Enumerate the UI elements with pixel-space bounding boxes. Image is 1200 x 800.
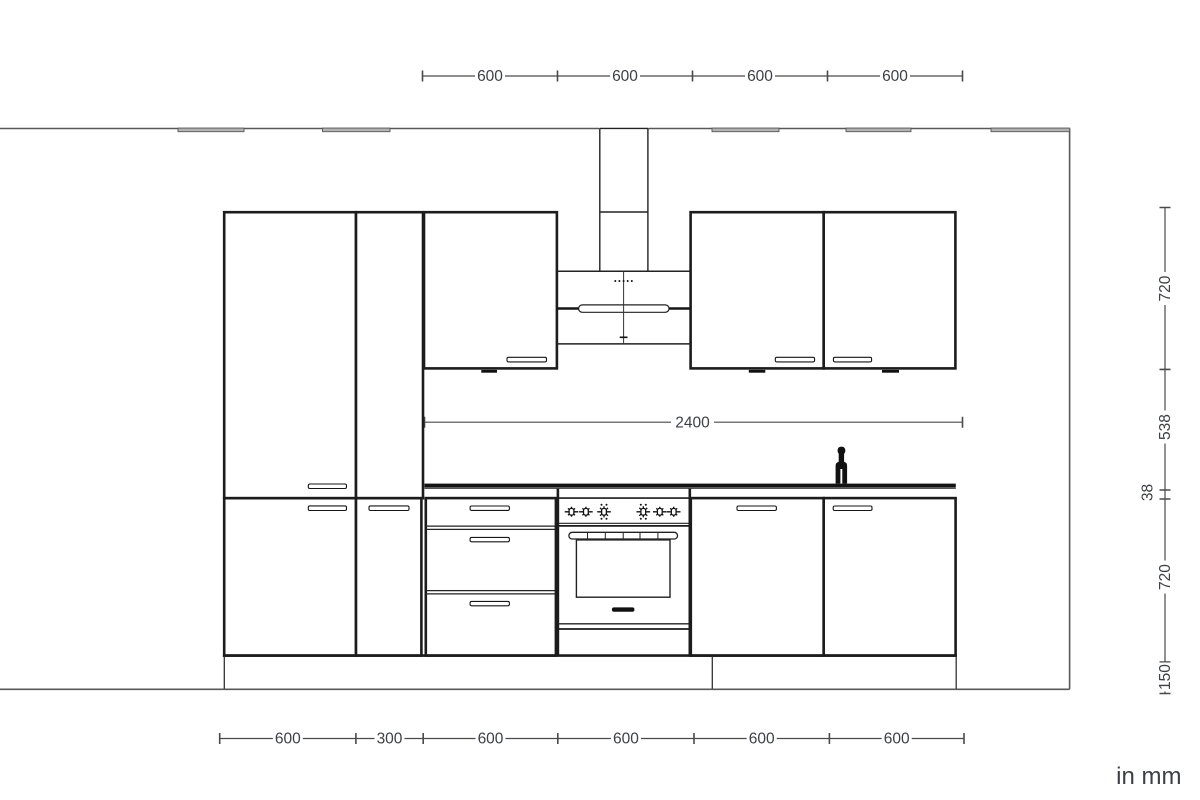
svg-text:38: 38: [1140, 484, 1157, 501]
svg-text:600: 600: [747, 68, 773, 85]
svg-text:600: 600: [478, 731, 504, 748]
svg-text:600: 600: [477, 68, 503, 85]
svg-text:538: 538: [1157, 414, 1174, 440]
svg-text:600: 600: [613, 731, 639, 748]
svg-text:600: 600: [612, 68, 638, 85]
svg-text:in mm: in mm: [1116, 763, 1181, 790]
svg-text:600: 600: [884, 731, 910, 748]
svg-text:720: 720: [1157, 275, 1174, 301]
svg-text:600: 600: [882, 68, 908, 85]
svg-text:720: 720: [1157, 564, 1174, 590]
svg-text:2400: 2400: [675, 415, 710, 432]
svg-text:150: 150: [1157, 664, 1174, 690]
svg-text:300: 300: [377, 731, 403, 748]
svg-text:600: 600: [749, 731, 775, 748]
svg-text:600: 600: [275, 731, 301, 748]
